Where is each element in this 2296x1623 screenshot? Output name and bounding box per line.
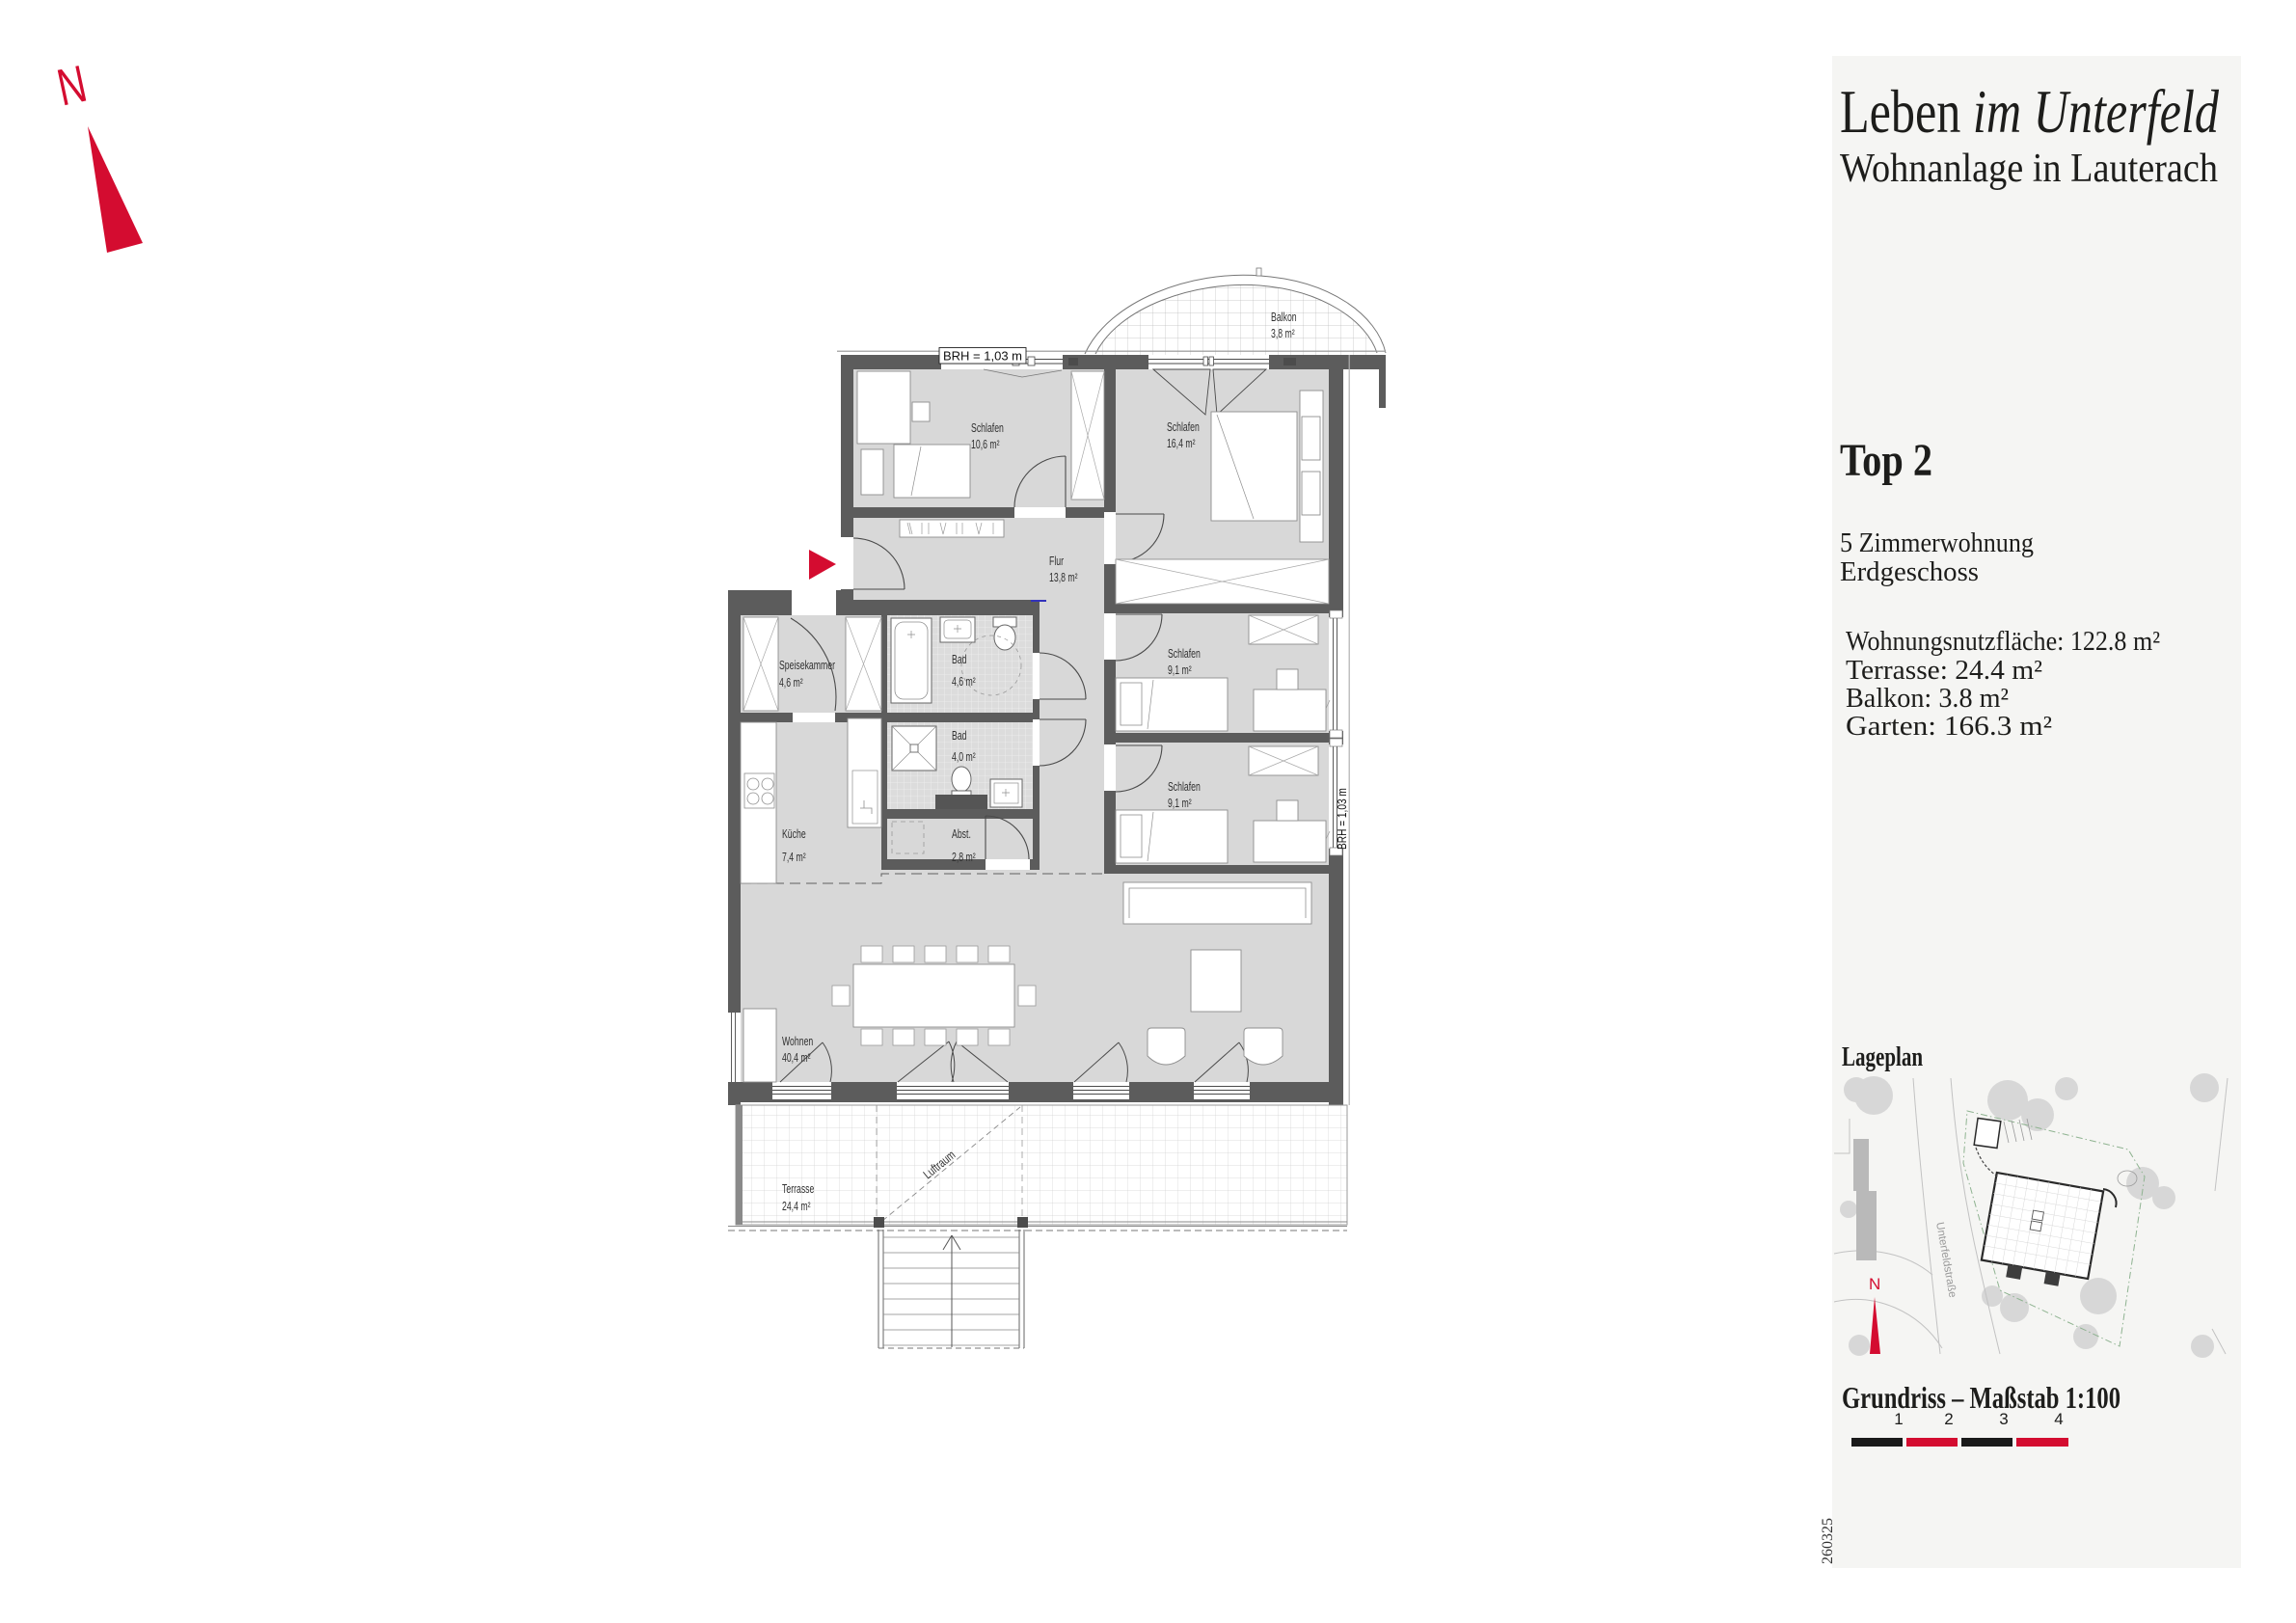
svg-text:Speisekammer: Speisekammer [779,659,835,672]
svg-text:24,4 m²: 24,4 m² [782,1200,811,1213]
svg-text:3: 3 [1999,1410,2008,1428]
svg-text:Erdgeschoss: Erdgeschoss [1840,556,1979,587]
svg-text:Schlafen: Schlafen [971,421,1004,435]
svg-text:Wohnanlage in Lauterach: Wohnanlage in Lauterach [1840,147,2218,191]
svg-text:Balkon: Balkon [1271,311,1297,324]
svg-text:Top 2: Top 2 [1840,435,1932,486]
svg-text:9,1 m²: 9,1 m² [1168,797,1192,810]
svg-text:16,4 m²: 16,4 m² [1167,437,1196,450]
svg-text:BRH = 1,03 m: BRH = 1,03 m [943,349,1022,364]
svg-text:4: 4 [2054,1410,2063,1428]
svg-text:Schlafen: Schlafen [1167,420,1200,434]
svg-text:13,8 m²: 13,8 m² [1049,571,1078,584]
svg-text:260325: 260325 [1820,1518,1836,1564]
svg-text:Balkon: 3.8 m²: Balkon: 3.8 m² [1846,683,2009,714]
svg-text:Schlafen: Schlafen [1168,647,1201,661]
svg-text:Wohnungsnutzfläche: 122.8 m²: Wohnungsnutzfläche: 122.8 m² [1846,626,2160,657]
svg-text:BRH = 1,03 m: BRH = 1,03 m [1336,788,1349,850]
svg-text:3,8 m²: 3,8 m² [1271,327,1295,340]
svg-text:4,6 m²: 4,6 m² [779,676,803,690]
svg-text:Terrasse: 24.4 m²: Terrasse: 24.4 m² [1846,655,2042,686]
svg-text:10,6 m²: 10,6 m² [971,438,1000,451]
svg-text:4,0 m²: 4,0 m² [952,750,976,764]
svg-text:Leben im Unterfeld: Leben im Unterfeld [1840,77,2220,146]
svg-text:Garten: 166.3 m²: Garten: 166.3 m² [1846,711,2052,742]
svg-text:Bad: Bad [952,653,966,666]
svg-text:Flur: Flur [1049,555,1064,568]
svg-text:2,8 m²: 2,8 m² [952,851,976,864]
svg-text:Küche: Küche [782,827,806,841]
svg-text:1: 1 [1894,1410,1903,1428]
svg-text:N: N [1869,1275,1880,1293]
svg-text:Lageplan: Lageplan [1842,1042,1923,1072]
svg-text:Abst.: Abst. [952,827,971,841]
svg-text:7,4 m²: 7,4 m² [782,851,806,864]
svg-text:2: 2 [1944,1410,1953,1428]
svg-text:40,4 m²: 40,4 m² [782,1051,811,1065]
svg-text:9,1 m²: 9,1 m² [1168,663,1192,677]
svg-text:4,6 m²: 4,6 m² [952,675,976,689]
svg-text:Wohnen: Wohnen [782,1035,813,1048]
svg-text:Bad: Bad [952,729,966,743]
svg-text:Terrasse: Terrasse [782,1182,814,1196]
svg-text:Grundriss – Maßstab 1:100: Grundriss – Maßstab 1:100 [1842,1380,2120,1415]
svg-text:5 Zimmerwohnung: 5 Zimmerwohnung [1840,527,2034,558]
svg-text:Schlafen: Schlafen [1168,780,1201,794]
